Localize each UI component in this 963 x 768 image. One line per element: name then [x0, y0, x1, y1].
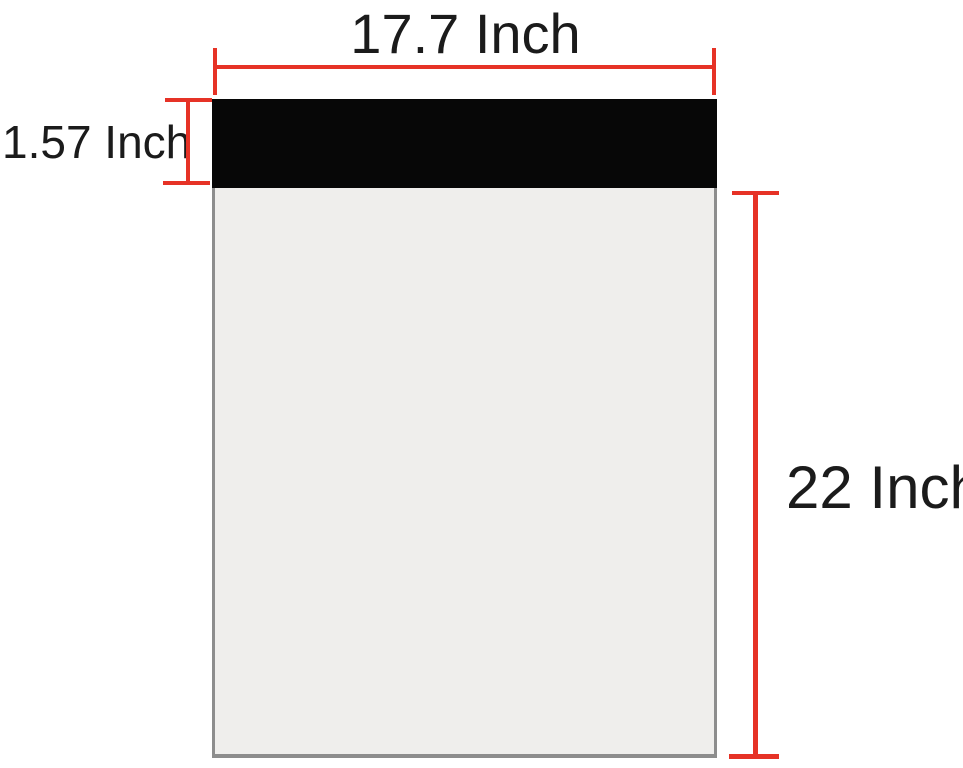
width-dimension-tick-right — [712, 48, 716, 95]
flap-height-dimension-tick-top — [165, 98, 212, 102]
dimension-diagram: 17.7 Inch 1.57 Inch 22 Inch — [0, 0, 963, 768]
body-height-dimension-line — [753, 192, 758, 758]
flap-height-dimension-tick-bottom — [163, 181, 210, 185]
body-height-dimension-tick-top — [732, 191, 779, 195]
flap-height-dimension-label: 1.57 Inch — [2, 119, 180, 165]
mailer-bag-body — [212, 188, 717, 758]
width-dimension-line — [215, 65, 714, 69]
body-height-dimension-label: 22 Inch — [786, 458, 963, 518]
width-dimension-tick-left — [213, 48, 217, 95]
width-dimension-label: 17.7 Inch — [215, 6, 716, 62]
flap-height-dimension-line — [186, 100, 190, 185]
mailer-flap-strip — [212, 99, 717, 188]
body-height-dimension-tick-bottom — [729, 754, 779, 759]
